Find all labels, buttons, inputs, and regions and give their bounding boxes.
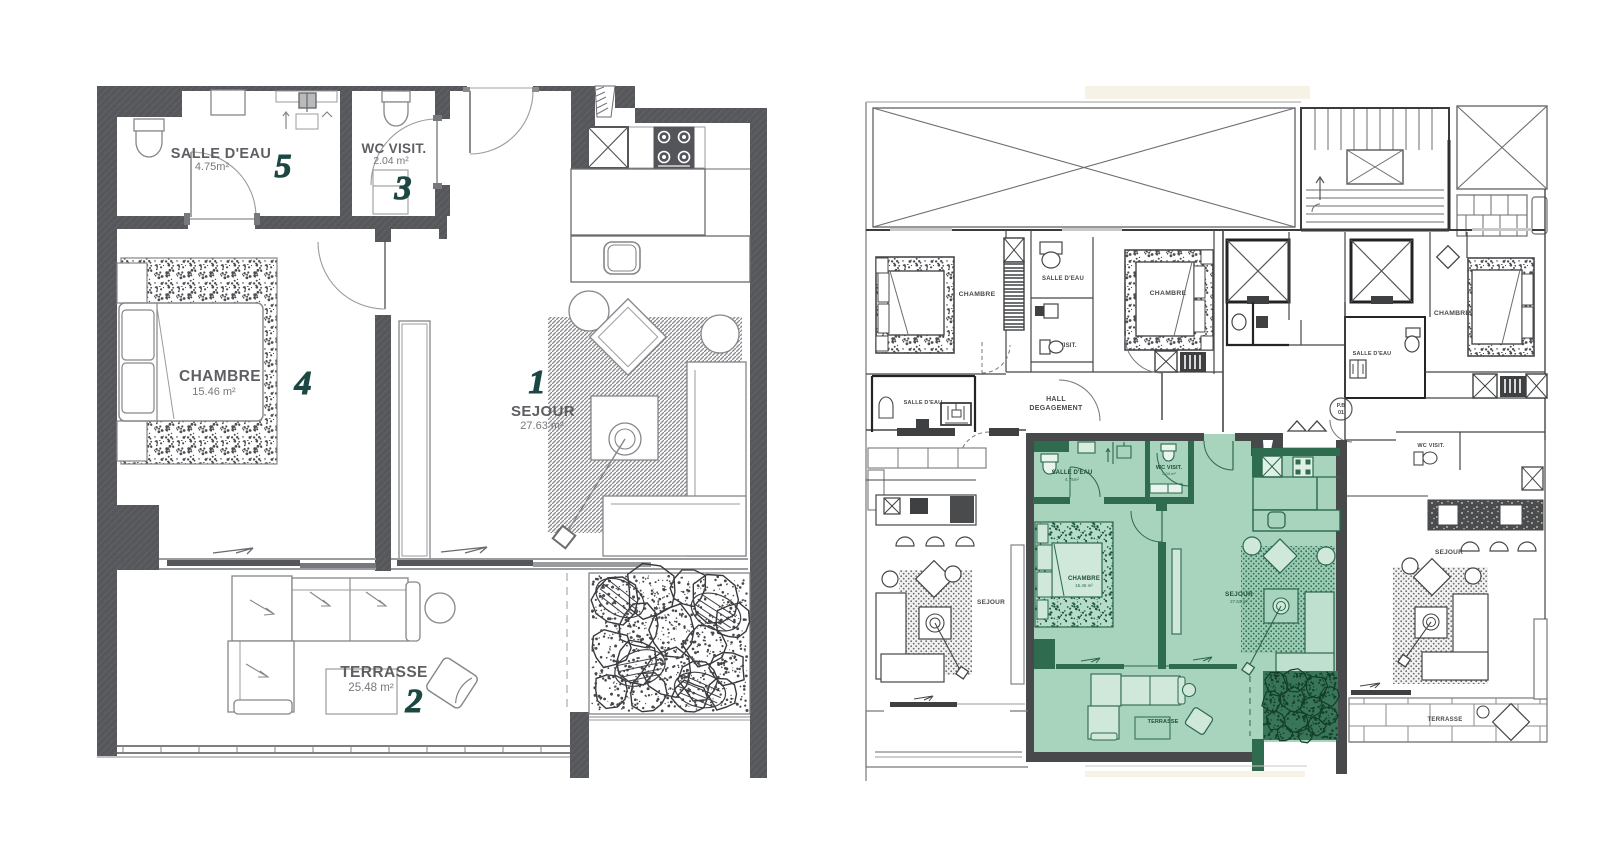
svg-text:CHAMBRE: CHAMBRE (1150, 290, 1187, 297)
svg-text:SALLE D'EAU: SALLE D'EAU (1052, 470, 1093, 476)
svg-text:3: 3 (394, 170, 412, 207)
svg-text:TERRASSE: TERRASSE (1148, 719, 1179, 725)
svg-text:01: 01 (1338, 410, 1344, 416)
svg-text:15.46 m²: 15.46 m² (192, 386, 236, 398)
svg-text:P.B: P.B (1337, 403, 1345, 409)
svg-text:SEJOUR: SEJOUR (1225, 591, 1253, 598)
svg-text:DEGAGEMENT: DEGAGEMENT (1029, 405, 1083, 412)
svg-text:SEJOUR: SEJOUR (511, 403, 575, 420)
svg-text:5: 5 (275, 148, 292, 185)
svg-text:CHAMBRE: CHAMBRE (959, 291, 996, 298)
svg-text:CHAMBRE: CHAMBRE (179, 368, 261, 385)
svg-text:27.63 m²: 27.63 m² (520, 420, 564, 432)
svg-text:2: 2 (405, 683, 423, 720)
svg-text:CHAMBRE: CHAMBRE (1068, 576, 1100, 582)
svg-text:25.48 m²: 25.48 m² (348, 682, 394, 694)
svg-text:15.46 m²: 15.46 m² (1075, 583, 1093, 588)
svg-text:SALLE D'EAU: SALLE D'EAU (171, 146, 272, 162)
svg-text:CHAMBRE: CHAMBRE (1434, 310, 1470, 317)
svg-text:4: 4 (294, 365, 312, 402)
svg-text:TERRASSE: TERRASSE (1427, 717, 1462, 723)
svg-text:4.75m²: 4.75m² (1065, 477, 1080, 482)
svg-text:27.63 m²: 27.63 m² (1230, 599, 1248, 604)
svg-text:HALL: HALL (1046, 396, 1066, 403)
svg-text:4.75m²: 4.75m² (195, 161, 230, 173)
svg-text:TERRASSE: TERRASSE (340, 664, 428, 681)
svg-text:SALLE D'EAU: SALLE D'EAU (1042, 276, 1084, 282)
svg-text:2.04 m²: 2.04 m² (373, 155, 409, 167)
svg-text:1: 1 (529, 364, 546, 401)
svg-text:WC VISIT.: WC VISIT. (1417, 443, 1444, 449)
svg-text:SALLE D'EAU: SALLE D'EAU (1353, 351, 1392, 357)
svg-text:WC VISIT.: WC VISIT. (362, 141, 427, 156)
svg-text:SEJOUR: SEJOUR (1435, 549, 1463, 556)
svg-text:SEJOUR: SEJOUR (977, 599, 1005, 606)
svg-text:SALLE D'EAU: SALLE D'EAU (904, 400, 943, 406)
